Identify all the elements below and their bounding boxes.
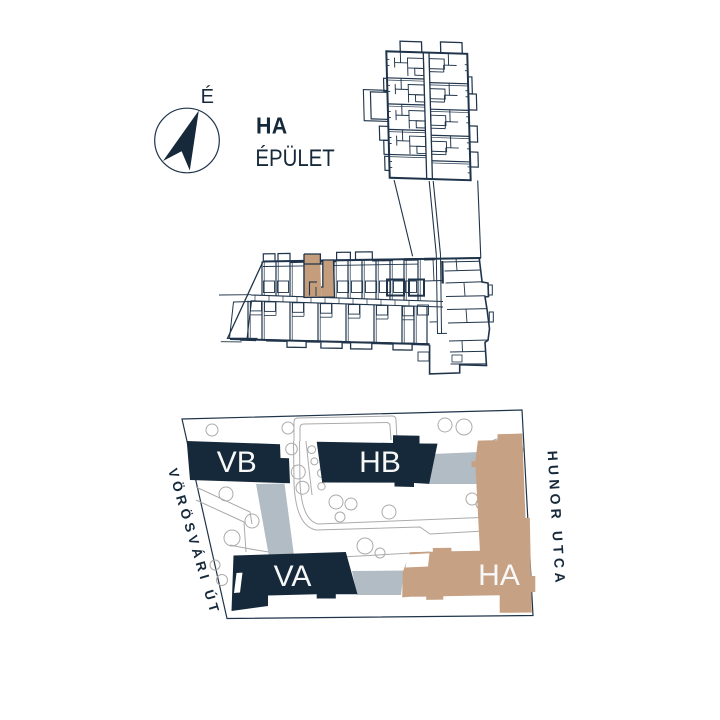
svg-text:É: É: [201, 85, 214, 108]
svg-text:VB: VB: [217, 446, 257, 479]
svg-text:VA: VA: [274, 560, 312, 593]
svg-text:ÉPÜLET: ÉPÜLET: [255, 144, 335, 171]
svg-text:HB: HB: [359, 446, 401, 479]
svg-text:HUNOR UTCA: HUNOR UTCA: [545, 450, 569, 587]
svg-text:HA: HA: [256, 113, 288, 139]
svg-text:VÖRÖSVÁRI ÚT: VÖRÖSVÁRI ÚT: [165, 467, 223, 618]
svg-text:HA: HA: [478, 559, 520, 592]
